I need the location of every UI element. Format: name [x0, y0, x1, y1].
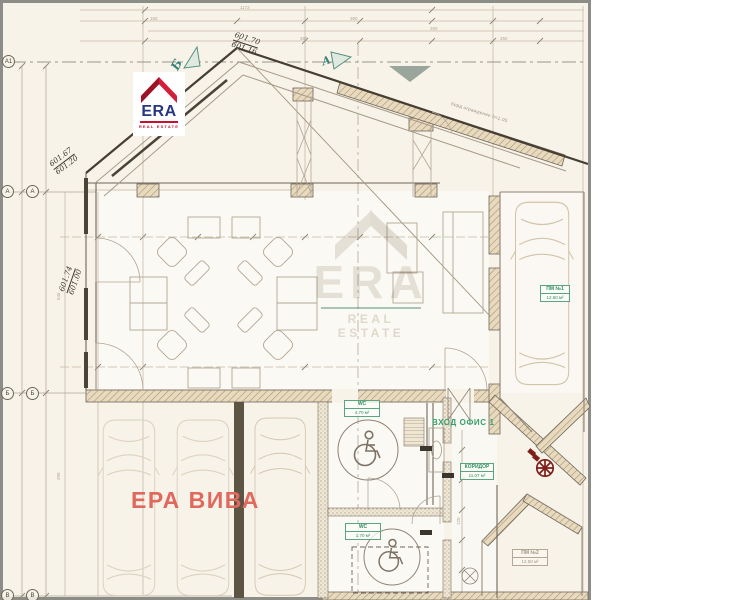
office-area-highlight [97, 191, 489, 389]
dim-number: 250 [500, 36, 508, 41]
section-marker-b-icon [184, 47, 200, 68]
era-logo-rule [140, 121, 178, 123]
era-logo-wordmark: ERA [133, 103, 185, 121]
room-area: 12.50 м² [513, 558, 547, 565]
room-name: WC [346, 524, 380, 532]
room-name: КОРИДОР [461, 464, 493, 472]
axis-bubble-a1: А1 [2, 55, 15, 68]
watermark-wordmark: ERA [312, 260, 430, 304]
dim-number: 120 [456, 517, 461, 525]
room-name: ПМ №2 [513, 550, 547, 558]
shelf-unit [404, 418, 424, 446]
axis-bubble-a: А [1, 185, 14, 198]
dim-number: 545 [56, 292, 61, 300]
room-label-wc1: WC 4.70 м² [344, 400, 380, 417]
watermark-tagline: REAL ESTATE [312, 312, 430, 340]
room-area: 1.70 м² [346, 532, 380, 539]
room-label-corridor: КОРИДОР 11.07 м² [460, 463, 494, 480]
section-marker-a-icon [331, 52, 351, 69]
room-label-wc2: WC 1.70 м² [345, 523, 381, 540]
room-area: 11.07 м² [461, 472, 493, 479]
dim-number: 390 [350, 16, 358, 21]
room-label-parking: ПМ №1 12.50 м² [540, 285, 570, 302]
era-logo: ERA REAL ESTATE [133, 72, 185, 136]
axis-bubble-v: В [1, 589, 14, 600]
room-area: 12.50 м² [541, 294, 569, 301]
north-triangle-icon [389, 66, 431, 82]
project-title: ЕРА ВИВА [131, 487, 260, 514]
axis-bubble-b: Б [1, 387, 14, 400]
room-label-parking-lower: ПМ №2 12.50 м² [512, 549, 548, 566]
era-logo-chevron-icon [141, 77, 177, 103]
dim-number: 390 [56, 472, 61, 480]
floor-plan-screenshot: А1 А А Б Б В В 601.70 601.16 601.67 601.… [0, 0, 747, 600]
dim-number: 260 [430, 26, 438, 31]
dim-number: 1172 [240, 5, 250, 10]
entrance-office-label: ВХОД ОФИС 1 [432, 418, 495, 427]
axis-bubble-b: Б [26, 387, 39, 400]
era-logo-tagline: REAL ESTATE [133, 124, 185, 129]
dim-number: 385 [300, 36, 308, 41]
room-name: WC [345, 401, 379, 409]
watermark-chevron-icon [335, 210, 407, 260]
axis-bubble-v: В [26, 589, 39, 600]
era-watermark: ERA REAL ESTATE [312, 210, 430, 340]
dim-number: 150 [150, 16, 158, 21]
room-name: ПМ №1 [541, 286, 569, 294]
axis-bubble-a: А [26, 185, 39, 198]
room-area: 4.70 м² [345, 409, 379, 416]
